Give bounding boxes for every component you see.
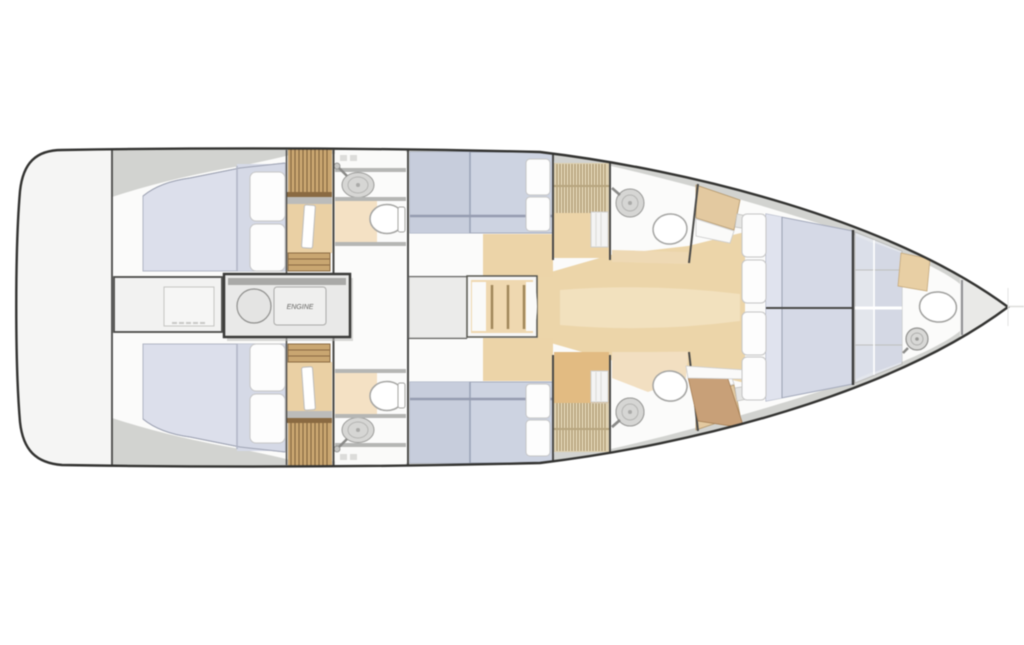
svg-text:ENGINE: ENGINE [287,304,314,311]
